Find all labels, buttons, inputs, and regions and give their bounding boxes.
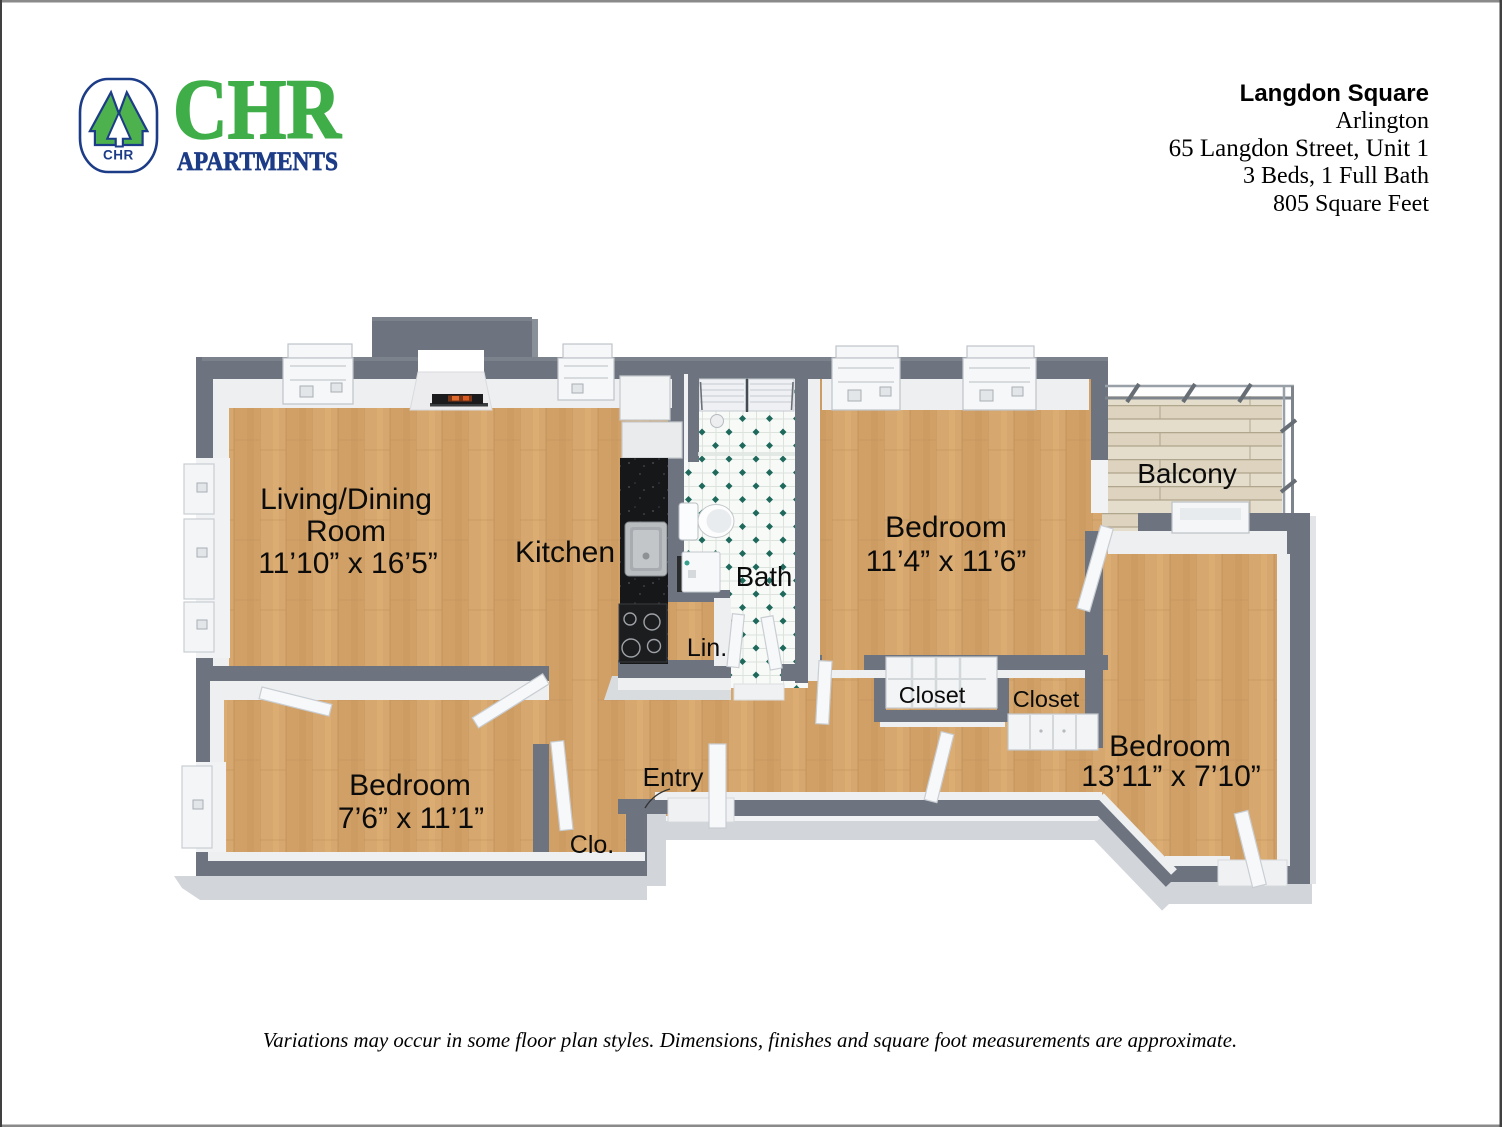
svg-text:CHR: CHR xyxy=(173,61,342,157)
svg-text:Closet: Closet xyxy=(1013,686,1080,712)
svg-text:7’6” x 11’1”: 7’6” x 11’1” xyxy=(338,802,484,835)
svg-text:Arlington: Arlington xyxy=(1336,108,1429,134)
svg-text:13’11” x 7’10”: 13’11” x 7’10” xyxy=(1081,760,1261,793)
svg-text:Living/Dining: Living/Dining xyxy=(260,483,432,516)
svg-text:Bath: Bath xyxy=(736,561,793,592)
svg-text:3 Beds, 1 Full Bath: 3 Beds, 1 Full Bath xyxy=(1243,163,1429,189)
svg-text:Kitchen: Kitchen xyxy=(515,536,615,569)
svg-text:Clo.: Clo. xyxy=(570,831,614,859)
svg-text:Variations may occur in some f: Variations may occur in some floor plan … xyxy=(263,1029,1237,1052)
svg-text:Langdon Square: Langdon Square xyxy=(1240,80,1429,107)
svg-text:11’4” x 11’6”: 11’4” x 11’6” xyxy=(866,545,1027,578)
svg-text:CHR: CHR xyxy=(103,147,134,162)
svg-text:Balcony: Balcony xyxy=(1137,458,1237,489)
svg-text:Room: Room xyxy=(306,515,386,548)
svg-text:Closet: Closet xyxy=(899,682,966,708)
svg-text:Bedroom: Bedroom xyxy=(349,769,471,802)
svg-text:Bedroom: Bedroom xyxy=(885,511,1007,544)
svg-text:Entry: Entry xyxy=(643,762,704,792)
svg-text:11’10” x 16’5”: 11’10” x 16’5” xyxy=(258,547,438,580)
svg-text:805 Square Feet: 805 Square Feet xyxy=(1273,191,1429,217)
svg-text:APARTMENTS: APARTMENTS xyxy=(177,147,338,176)
svg-text:Bedroom: Bedroom xyxy=(1109,730,1231,763)
svg-text:65 Langdon Street, Unit 1: 65 Langdon Street, Unit 1 xyxy=(1169,135,1429,162)
svg-text:Lin.: Lin. xyxy=(687,634,727,662)
